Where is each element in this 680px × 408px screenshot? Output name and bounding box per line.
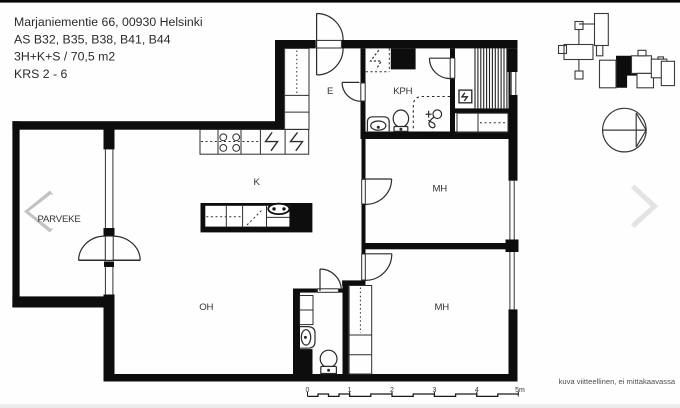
svg-text:kuva viitteellinen, ei mittaka: kuva viitteellinen, ei mittakaavassa	[559, 377, 676, 386]
svg-text:0: 0	[306, 387, 310, 394]
svg-text:2: 2	[390, 387, 394, 394]
svg-text:3H+K+S / 70,5 m2: 3H+K+S / 70,5 m2	[14, 50, 115, 64]
svg-text:3: 3	[432, 387, 436, 394]
svg-text:AS B32, B35, B38, B41, B44: AS B32, B35, B38, B41, B44	[14, 32, 171, 46]
svg-text:PARVEKE: PARVEKE	[38, 214, 81, 225]
svg-text:OH: OH	[199, 302, 213, 313]
svg-text:4: 4	[475, 387, 479, 394]
svg-text:KRS 2 - 6: KRS 2 - 6	[14, 67, 67, 81]
svg-text:E: E	[327, 86, 333, 97]
svg-text:KPH: KPH	[393, 86, 412, 97]
svg-text:1: 1	[348, 387, 352, 394]
svg-text:K: K	[254, 177, 261, 188]
svg-text:Marjaniementie 66, 00930 Helsi: Marjaniementie 66, 00930 Helsinki	[14, 15, 203, 29]
svg-text:5m: 5m	[515, 387, 525, 394]
svg-text:MH: MH	[435, 302, 450, 313]
svg-text:MH: MH	[433, 184, 448, 195]
